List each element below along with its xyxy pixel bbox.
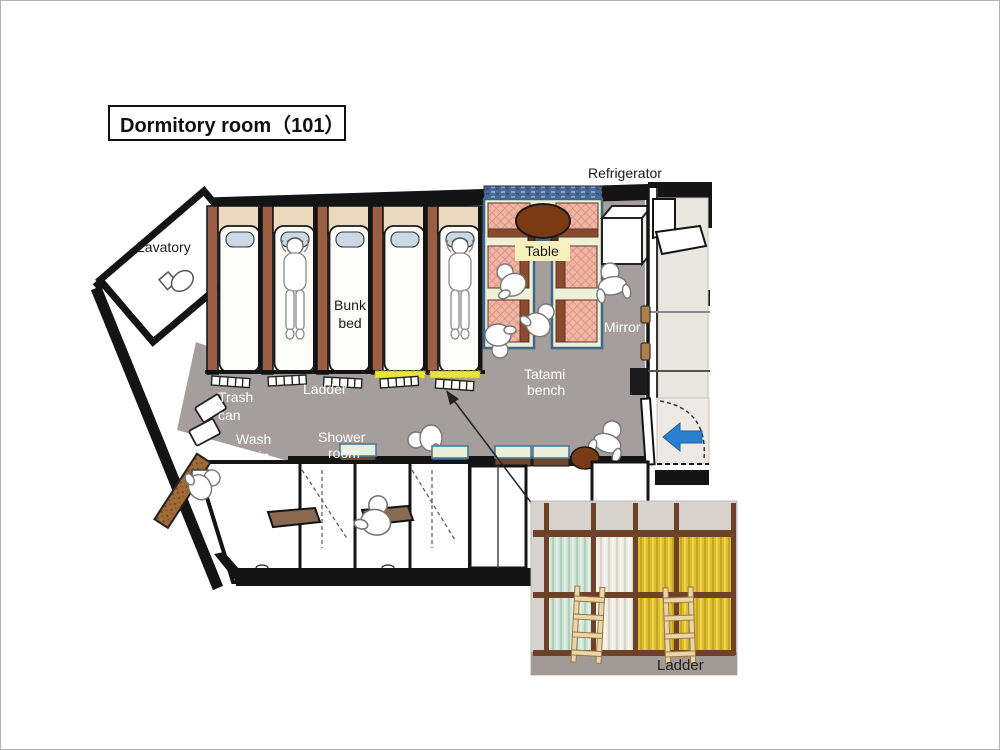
ladder-icon xyxy=(268,375,306,386)
wall-hinge xyxy=(641,306,650,323)
bunk-bed xyxy=(317,206,373,374)
bunk-beds: Bunk bed Ladder xyxy=(205,206,485,397)
ladder-highlight xyxy=(430,371,480,378)
wall-hinge xyxy=(641,343,650,360)
table-label: Table xyxy=(525,243,559,259)
bunk-bed xyxy=(207,206,263,374)
tatami-bench-label-line1: Tatami xyxy=(524,366,565,382)
ladder-icon xyxy=(435,379,474,391)
ladder-icon xyxy=(380,376,419,388)
bunk-bed xyxy=(372,206,428,374)
ladder-icon xyxy=(211,376,250,388)
trash-can-label-line2: can xyxy=(218,407,241,423)
shower-room-label-line2: room xyxy=(328,445,360,461)
bench-step xyxy=(533,446,569,466)
window-strip xyxy=(484,186,602,199)
page: { "title": { "text": "Dormitory room（101… xyxy=(0,0,1000,750)
photo-ladder-label: Ladder xyxy=(657,657,704,674)
floor-plan-diagram: Lavatory Bunk bed Ladder xyxy=(0,0,1000,750)
wall-panel xyxy=(630,368,647,395)
ladder-label: Ladder xyxy=(303,381,347,397)
lavatory-label: Lavatory xyxy=(137,239,191,255)
wash-basin-label-line1: Wash xyxy=(236,431,271,447)
shower-room-label-line1: Shower xyxy=(318,429,366,445)
bunk-bed-label-line2: bed xyxy=(338,315,361,331)
trash-can-label-line1: Trash xyxy=(218,389,253,405)
mirror-label: Mirror xyxy=(604,319,641,335)
inset-photo: Ladder xyxy=(531,501,737,675)
refrigerator-label: Refrigerator xyxy=(588,165,662,181)
tatami-bench-label-line2: bench xyxy=(527,382,565,398)
bunk-bed-label-line1: Bunk xyxy=(334,297,367,313)
